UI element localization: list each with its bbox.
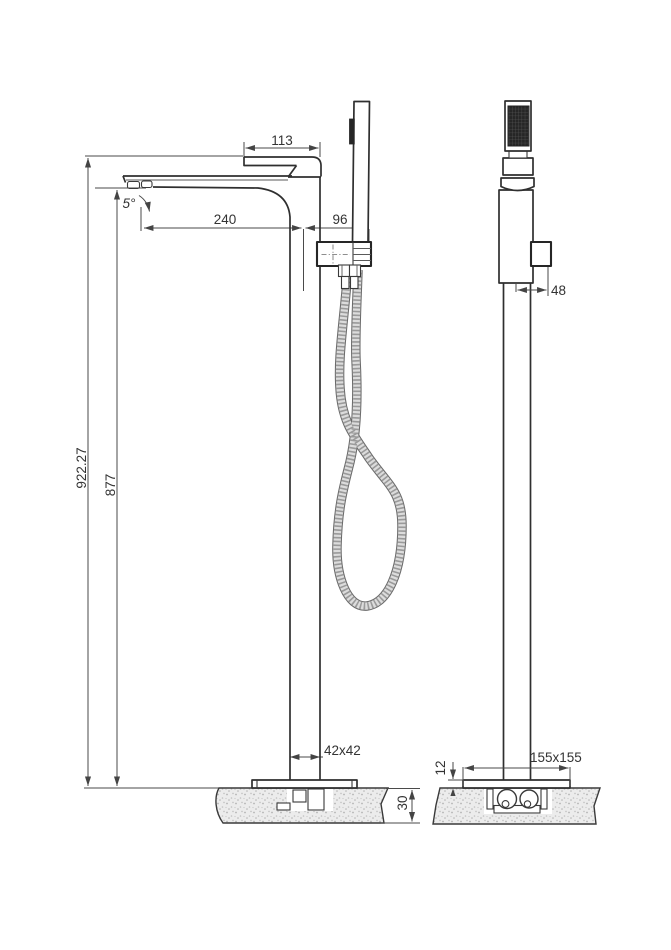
lever-handle-front — [244, 157, 321, 177]
dim-lever-width: 113 — [244, 133, 320, 157]
holder-bracket-side — [531, 242, 551, 266]
shower-spray-face — [508, 106, 529, 146]
dim-floor-depth: 30 — [381, 789, 420, 824]
hand-shower-side — [499, 101, 534, 283]
dim-base-plate-size-label: 155x155 — [530, 750, 582, 765]
dim-spout-reach-label: 240 — [214, 212, 237, 227]
dim-spout-angle: 5° — [123, 196, 150, 212]
technical-drawing: 922.27 877 113 240 96 5° — [0, 0, 671, 950]
spout-aerator — [128, 181, 153, 189]
dim-bracket-offset-label: 48 — [551, 283, 566, 298]
dim-base-plate-thickness-label: 12 — [433, 760, 448, 775]
dim-floor-depth-label: 30 — [395, 795, 410, 810]
shower-hose — [337, 270, 402, 606]
dim-shower-offset-label: 96 — [332, 212, 347, 227]
shower-collar-lower — [501, 178, 534, 191]
hose-connector-nuts — [339, 265, 361, 289]
column-side — [504, 283, 531, 780]
dim-lever-width-label: 113 — [271, 133, 293, 148]
base-plate-side — [463, 780, 570, 788]
shower-face-edge — [350, 119, 355, 144]
base-plate-front — [252, 780, 357, 788]
side-view: 48 155x155 12 — [433, 101, 600, 824]
drawing-canvas: 922.27 877 113 240 96 5° — [0, 0, 671, 950]
holder-bracket-front — [317, 242, 371, 266]
dim-overall-height-label: 922.27 — [74, 447, 89, 488]
dim-spout-reach: 240 — [141, 207, 302, 231]
floor-section-front — [216, 788, 388, 823]
dim-spout-angle-label: 5° — [123, 196, 137, 211]
faucet-body-front — [123, 176, 321, 780]
front-view: 922.27 877 113 240 96 5° — [74, 102, 420, 824]
floor-section-side — [433, 788, 600, 824]
dim-spout-height-label: 877 — [103, 474, 118, 497]
shower-neck — [509, 151, 527, 158]
dim-column-section-label: 42x42 — [324, 743, 361, 758]
dim-column-section: 42x42 — [290, 743, 361, 758]
floor-cavity-front — [287, 789, 333, 811]
shower-collar-upper — [503, 158, 533, 175]
hand-shower-front — [350, 102, 370, 244]
dim-overall-height: 922.27 — [74, 156, 243, 788]
dim-spout-height: 877 — [95, 188, 146, 786]
